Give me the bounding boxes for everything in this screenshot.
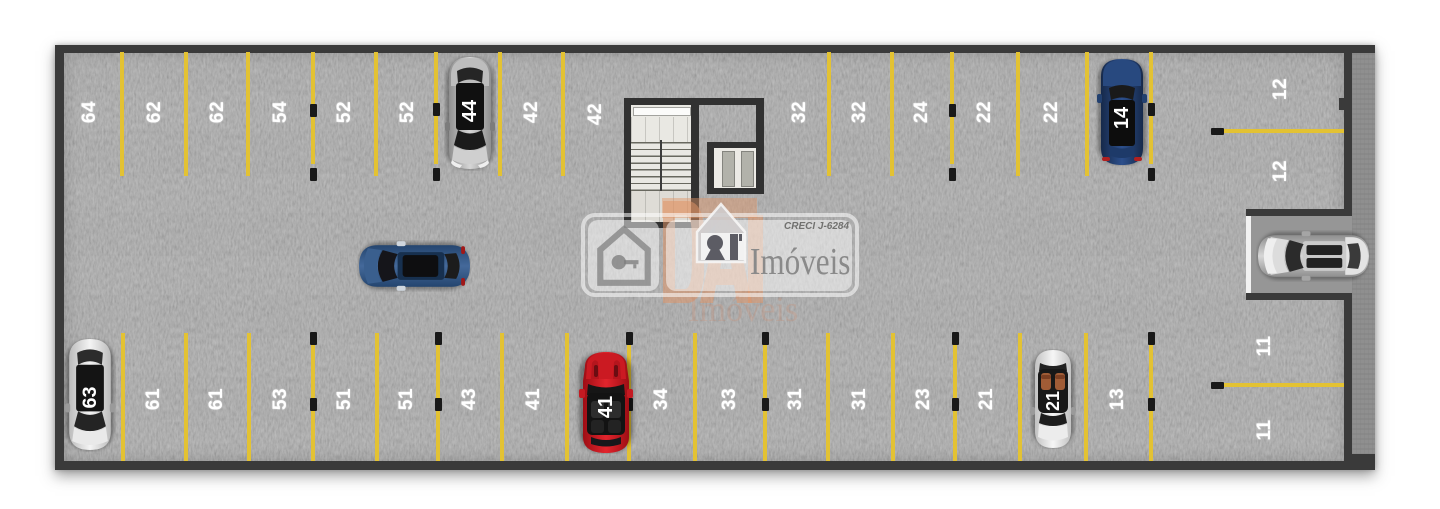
svg-text:21: 21 bbox=[1043, 391, 1063, 411]
svg-text:44: 44 bbox=[459, 99, 481, 122]
svg-text:14: 14 bbox=[1111, 106, 1133, 129]
svg-text:63: 63 bbox=[79, 386, 101, 408]
svg-text:41: 41 bbox=[595, 396, 617, 418]
